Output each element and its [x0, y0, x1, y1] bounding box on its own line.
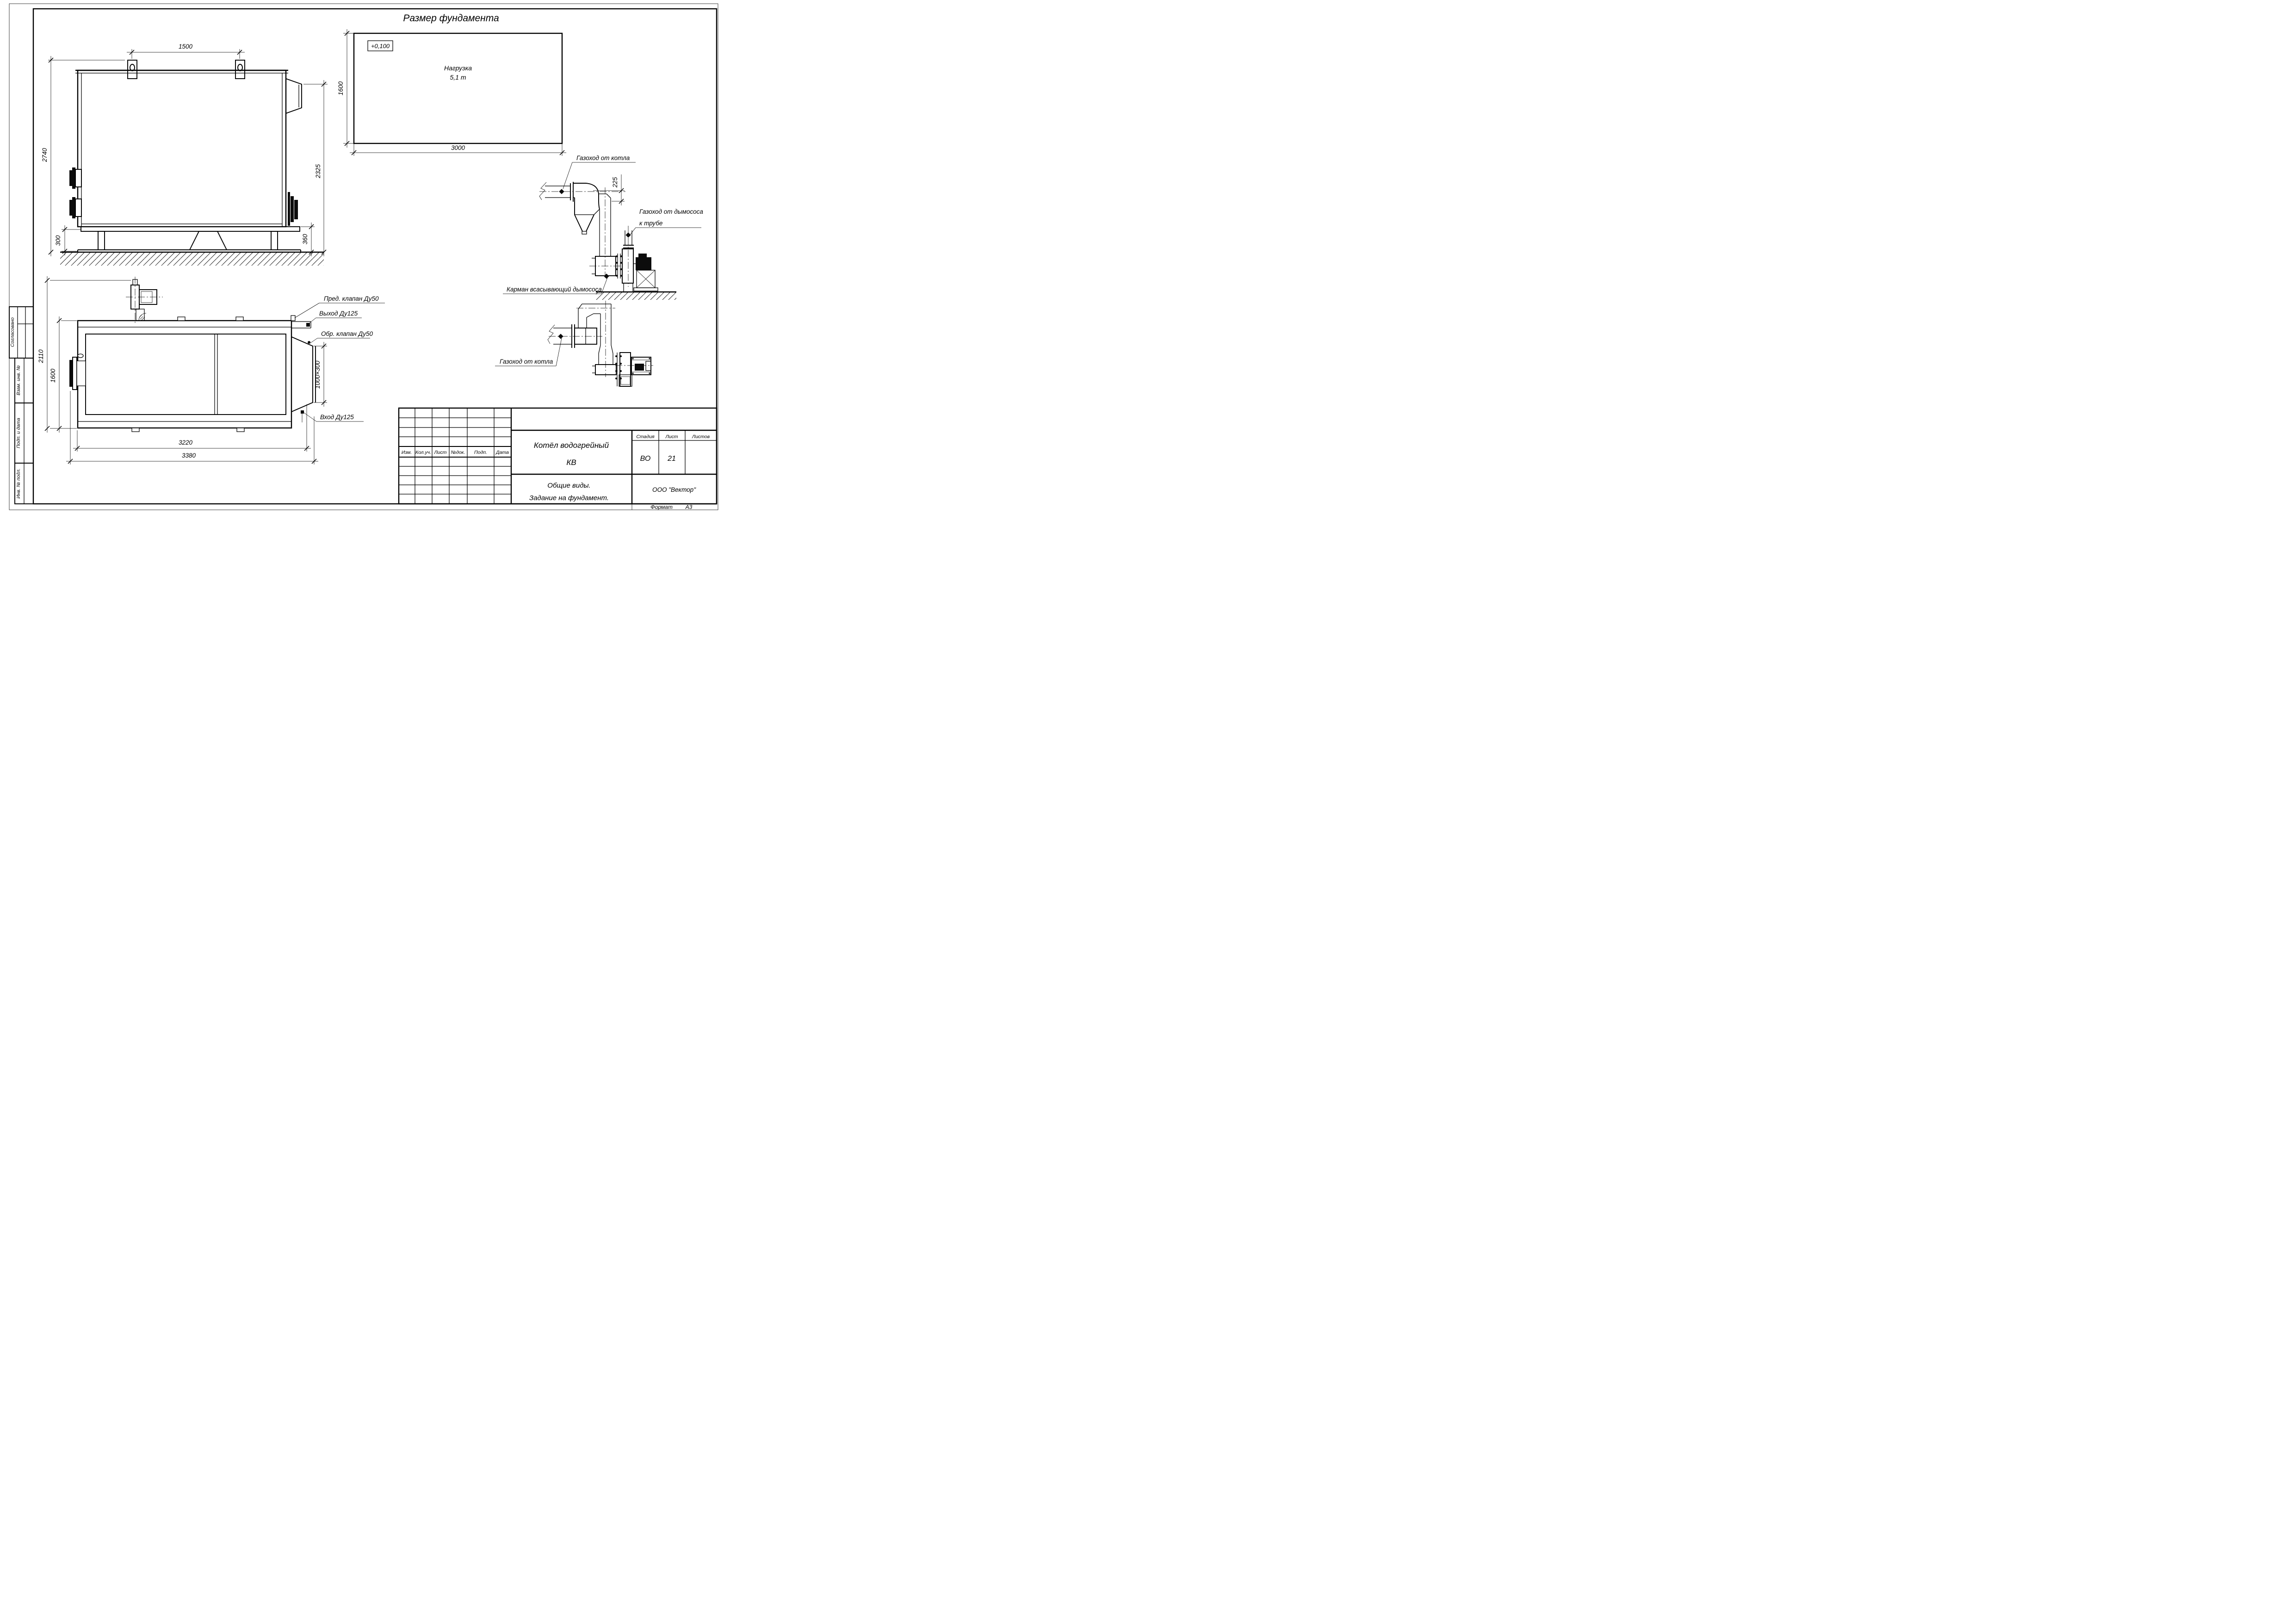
svg-text:Газоход от котла: Газоход от котла [576, 155, 630, 161]
label-inlet: Вход Ду125 [304, 413, 364, 421]
view-title-line1: Общие виды. [547, 482, 590, 489]
dim-flue-offset: 225 [612, 177, 619, 188]
elevation-value: +0,100 [371, 43, 390, 50]
doc-name-line1: Котёл водогрейный [534, 441, 609, 450]
flue-outlet [286, 79, 302, 113]
side-nozzle [69, 167, 81, 189]
load-value: 5,1 т [450, 74, 466, 81]
flue-diagram-plan: Газоход от котла [495, 301, 653, 386]
svg-text:Вход Ду125: Вход Ду125 [320, 414, 354, 421]
svg-text:Пред. клапан Ду50: Пред. клапан Ду50 [324, 295, 379, 302]
company-name: ООО "Вектор" [652, 486, 696, 493]
smoke-fan [616, 226, 658, 292]
view-title-line2: Задание на фундамент. [529, 494, 609, 502]
marker-icon [604, 273, 609, 279]
format-value: А3 [685, 504, 693, 510]
rev-col-koluch: Кол.уч. [415, 450, 431, 455]
sidebar-inv-orig: Инв. № подл. [16, 468, 21, 498]
dim-body-length: 3220 [179, 439, 193, 446]
ground-hatch [60, 252, 324, 266]
stage-value: ВО [640, 455, 651, 463]
safety-valve [291, 316, 295, 321]
sidebar-agreed: Согласовано [10, 317, 15, 347]
label-check-valve: Обр. клапан Ду50 [310, 330, 373, 343]
dim-base-height: 360 [302, 234, 309, 244]
label-fan-duct: Газоход от дымососа к трубе [629, 208, 703, 236]
dim-overall-width: 2110 [37, 349, 44, 364]
load-label: Нагрузка [444, 64, 472, 72]
dim-flue-height: 2325 [315, 164, 322, 179]
support-frame [75, 227, 303, 252]
sheet-value: 21 [667, 455, 676, 463]
foundation-plan: Размер фундамента +0,100 Нагрузка 5,1 т … [337, 13, 566, 156]
dim-frame-height: 300 [55, 235, 62, 246]
side-nozzle [69, 197, 81, 218]
plan-elbow [576, 301, 615, 377]
fan-motor [636, 257, 651, 270]
dim-foundation-width: 3000 [451, 144, 465, 151]
marker-icon [559, 189, 564, 194]
sidebar-replace-inv: Взам. инв. № [16, 365, 21, 396]
svg-text:Карман всасывающий дымососа: Карман всасывающий дымососа [507, 286, 602, 293]
boiler-body [75, 70, 288, 227]
lifting-lug [128, 60, 137, 79]
lifting-lug [235, 60, 245, 79]
svg-text:к трубе: к трубе [639, 220, 662, 227]
sidebar-sign-date: Подп. и дата [16, 418, 21, 448]
fan-plan-top [126, 277, 163, 324]
ground-hatch [596, 292, 676, 300]
boiler-side-view: 1500 [41, 43, 328, 266]
label-suction-pocket: Карман всасывающий дымососа [503, 278, 607, 294]
drawing-sheet: Согласовано Взам. инв. № Подп. и дата Ин… [0, 0, 725, 513]
rev-col-ndok: №док. [451, 450, 465, 455]
stage-label: Стадия [636, 434, 655, 440]
sheet-label: Лист [665, 434, 678, 440]
svg-text:Газоход от котла: Газоход от котла [500, 358, 553, 365]
flue-diagram-side: Газоход от котла 225 [503, 155, 703, 300]
inlet-fitting [301, 410, 304, 414]
format-label: Формат [650, 504, 673, 510]
rev-col-izm: Изм. [402, 450, 412, 455]
marker-icon [558, 334, 563, 339]
fan-motor [635, 364, 644, 371]
sidebar-strip: Согласовано Взам. инв. № Подп. и дата Ин… [9, 307, 33, 504]
svg-text:Выход Ду125: Выход Ду125 [319, 310, 358, 317]
dim-flue-opening: 1000×300 [314, 360, 321, 389]
dim-foundation-depth: 1600 [337, 81, 344, 95]
drain-fitting [288, 192, 298, 226]
outlet-flange [306, 323, 310, 327]
label-boiler-duct-plan: Газоход от котла [495, 338, 562, 366]
rev-col-data: Дата [495, 450, 509, 455]
svg-text:Газоход от дымососа: Газоход от дымососа [639, 208, 703, 215]
doc-name-line2: КВ [566, 458, 576, 467]
cyclone [573, 183, 600, 234]
label-outlet: Выход Ду125 [307, 310, 362, 325]
title-block: Изм. Кол.уч. Лист №док. Подп. Дата Котёл… [399, 408, 717, 504]
dim-lug-spacing: 1500 [179, 43, 193, 50]
rev-col-podp: Подп. [474, 450, 487, 455]
smoke-fan-plan [615, 353, 653, 386]
boiler-top-view: 2110 1600 3220 3380 1000×300 Пред. клапа… [37, 276, 385, 465]
dim-body-width: 1600 [50, 368, 56, 383]
sheets-label: Листов [692, 434, 710, 440]
rev-col-list: Лист [433, 450, 446, 455]
dim-overall-length: 3380 [182, 452, 196, 459]
svg-text:Обр. клапан Ду50: Обр. клапан Ду50 [321, 330, 373, 337]
format-note: Формат А3 [632, 504, 693, 510]
dim-overall-height: 2740 [41, 148, 48, 162]
foundation-title: Размер фундамента [403, 13, 499, 24]
